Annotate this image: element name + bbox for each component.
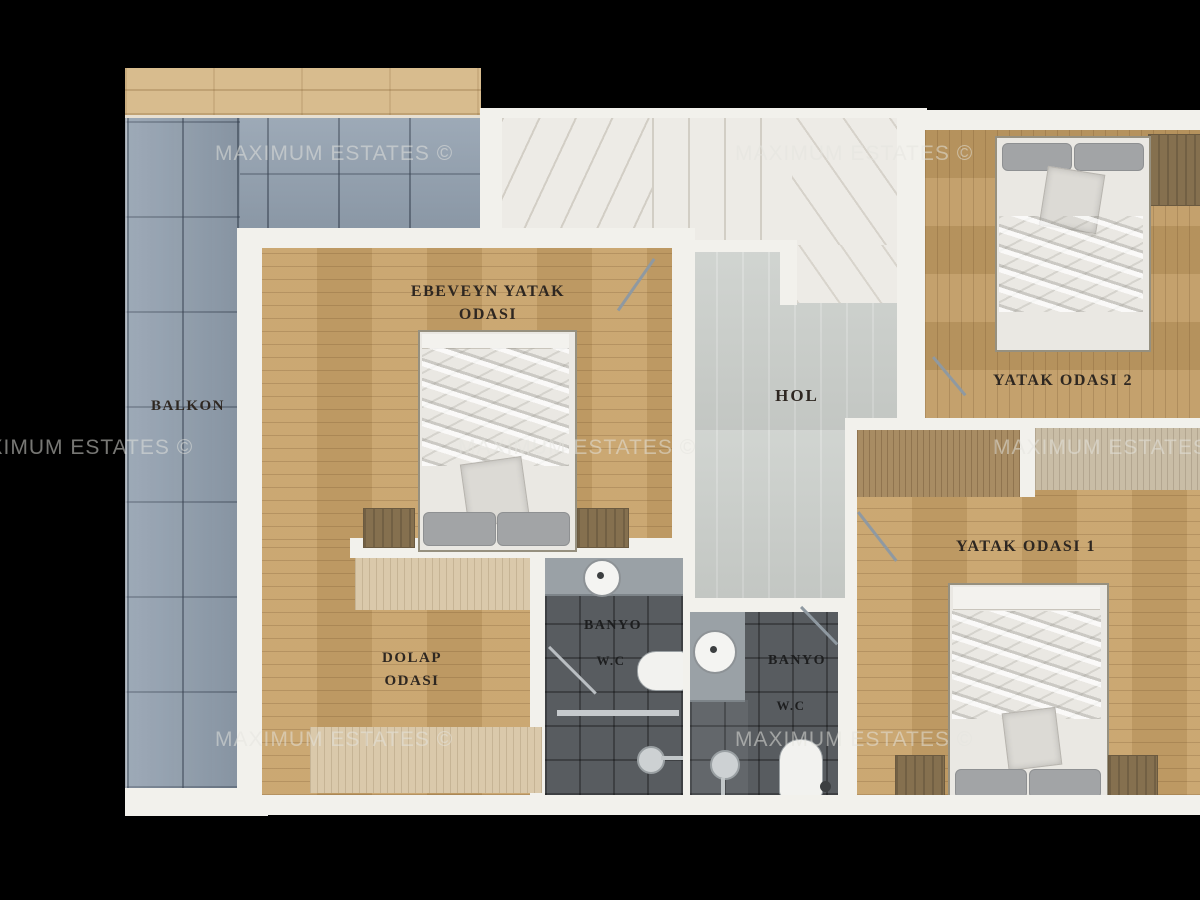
master-bedroom-label-line1: EBEVEYN YATAK (411, 283, 565, 301)
watermark-mid-right: MAXIMUM ESTATES © (993, 436, 1200, 460)
master-nightstand-right (577, 508, 629, 548)
bedroom1-accent-pillow (1002, 707, 1063, 771)
bathroom-right-wc-label: W.C (777, 698, 806, 714)
master-pillow-right (497, 512, 570, 546)
stair-treads-return (792, 118, 910, 245)
stair-treads-straight (652, 118, 792, 245)
bedroom1-bed (948, 583, 1109, 807)
stairs-floor (502, 118, 910, 245)
stair-wall-stub (780, 245, 797, 305)
closet-wardrobe-top (355, 558, 530, 610)
bedroom2-pillow-right (1074, 143, 1144, 171)
bedroom2-duvet (999, 216, 1143, 312)
bedroom2-side-table (1148, 134, 1200, 206)
master-bed-foot-sheet (422, 334, 569, 349)
balcony-label: BALKON (151, 398, 225, 415)
watermark-top-right: MAXIMUM ESTATES © (735, 142, 973, 166)
stair-treads-winder (502, 118, 652, 245)
stair-landing (797, 245, 897, 303)
master-pillow-left (423, 512, 496, 546)
bathroom-left-wc-label: W.C (597, 653, 626, 669)
bedroom2-pillow-left (1002, 143, 1072, 171)
bathroom-left-faucet (597, 572, 604, 579)
bedroom2-label: YATAK ODASI 2 (993, 372, 1133, 390)
bedroom1-duvet (952, 611, 1101, 719)
bathroom-left-toilet (637, 651, 685, 691)
floor-plan-canvas: BALKON EBEVEYN YATAK ODASI HOL YATAK ODA… (0, 0, 1200, 900)
bedroom1-bed-foot-sheet (953, 587, 1100, 610)
master-bedroom-label-line2: ODASI (459, 306, 517, 324)
watermark-mid-left: MAXIMUM ESTATES © (0, 436, 193, 460)
bathroom-right-shower-arm (721, 778, 725, 795)
watermark-bottom-right: MAXIMUM ESTATES © (735, 728, 973, 752)
closet-room-label-line2: ODASI (384, 673, 439, 690)
hall-label: HOL (775, 386, 819, 406)
bathroom-right-label: BANYO (768, 653, 826, 669)
outer-wall-bottom (237, 795, 1200, 815)
bathroom-left-shower-arm (661, 756, 683, 760)
watermark-mid-center: MAXIMUM ESTATES © (458, 436, 696, 460)
bedroom1-label: YATAK ODASI 1 (956, 538, 1096, 556)
master-nightstand-left (363, 508, 415, 548)
hall-floor-lower (690, 430, 845, 600)
closet-room-label-line1: DOLAP (382, 650, 442, 667)
bathroom-left-shower-head (637, 746, 665, 774)
bathroom-right-faucet (710, 646, 717, 653)
bathroom-right-shower-head (710, 750, 740, 780)
bathroom-left-label: BANYO (584, 618, 642, 634)
watermark-bottom-left: MAXIMUM ESTATES © (215, 728, 453, 752)
watermark-top-left: MAXIMUM ESTATES © (215, 142, 453, 166)
bedroom2-bed (995, 136, 1151, 352)
bathroom-right-drain (820, 781, 831, 792)
bathroom-left-towel-bar (557, 710, 679, 716)
balcony-edge-decking (125, 68, 481, 118)
